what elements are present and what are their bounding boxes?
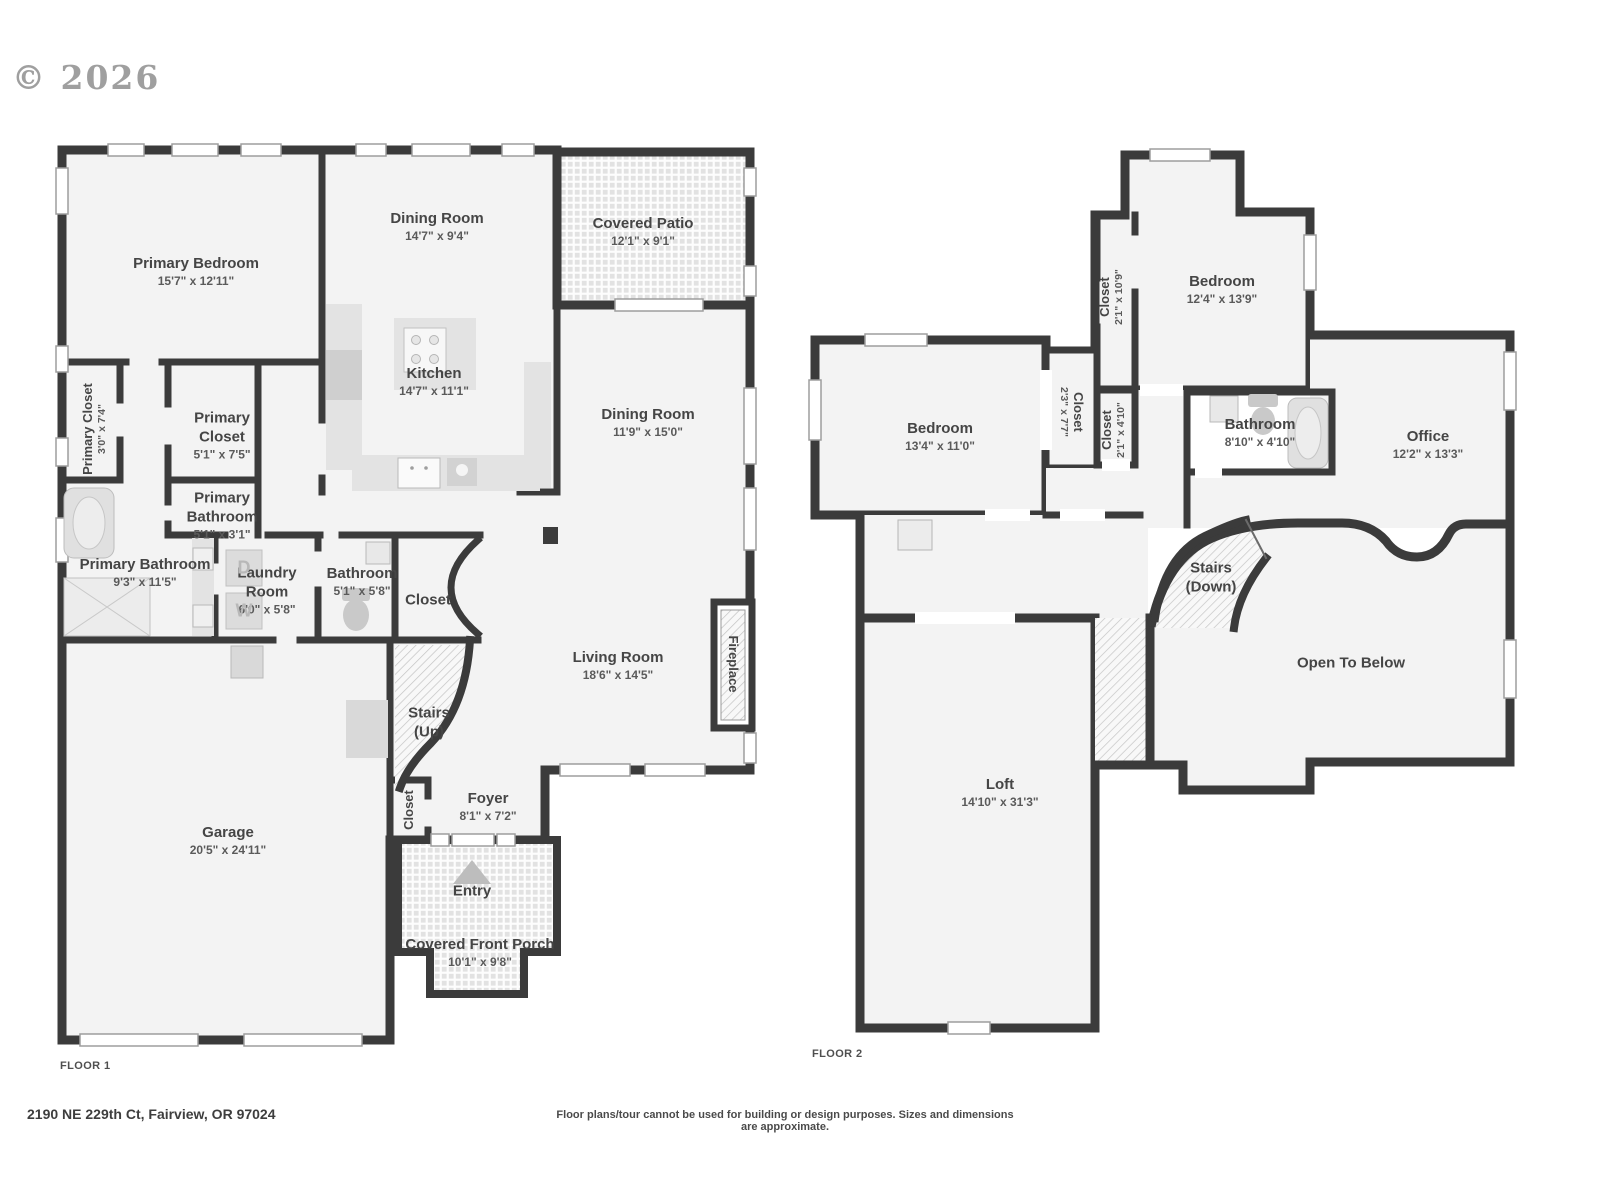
room-label-entry: Entry: [453, 883, 491, 902]
room-label-garage: Garage 20'5" x 24'11": [190, 824, 266, 858]
room-label-office: Office 12'2" x 13'3": [1393, 428, 1463, 462]
room-label-primary-closet-1: Primary Closet 3'0" x 7'4": [80, 383, 110, 475]
floorplan-page: © 2026 Primary Bedroom 15'7" x 12'11" Di…: [0, 0, 1600, 1200]
floor2-plan: [809, 149, 1516, 1034]
front-porch-area: [398, 840, 557, 994]
room-label-covered-front-porch: Covered Front Porch 10'1" x 9'8": [405, 936, 554, 970]
room-label-foyer: Foyer 8'1" x 7'2": [459, 790, 516, 824]
room-label-primary-bedroom: Primary Bedroom 15'7" x 12'11": [133, 255, 259, 289]
floor2-tag: FLOOR 2: [812, 1048, 862, 1060]
disclaimer-text: Floor plans/tour cannot be used for buil…: [548, 1109, 1022, 1133]
room-label-open-to-below: Open To Below: [1297, 655, 1405, 674]
property-address: 2190 NE 229th Ct, Fairview, OR 97024: [27, 1106, 276, 1122]
room-label-closet-foyer: Closet: [401, 790, 417, 830]
room-label-closet-hall: Closet: [405, 592, 451, 611]
washer-letter: W: [236, 601, 253, 622]
room-label-primary-bathroom: Primary Bathroom 9'3" x 11'5": [80, 556, 211, 590]
loft-area: [860, 618, 1095, 1028]
room-label-covered-patio: Covered Patio 12'1" x 9'1": [593, 215, 694, 249]
room-label-bedroom-top: Bedroom 12'4" x 13'9": [1187, 273, 1257, 307]
room-label-loft: Loft 14'10" x 31'3": [961, 776, 1038, 810]
floor1-tag: FLOOR 1: [60, 1060, 110, 1072]
room-label-dining-room-2: Dining Room 11'9" x 15'0": [601, 406, 694, 440]
room-label-dining-room-1: Dining Room 14'7" x 9'4": [390, 210, 483, 244]
room-label-closet-f2-1: Closet 2'1" x 10'9": [1097, 269, 1127, 325]
room-label-closet-f2-3: Closet 2'1" x 4'10": [1099, 402, 1129, 458]
room-label-primary-closet-2: Primary Closet 5'1" x 7'5": [182, 409, 262, 462]
room-label-bedroom-left: Bedroom 13'4" x 11'0": [905, 420, 975, 454]
room-label-primary-bathroom-small: Primary Bathroom 5'1" x 3'1": [175, 489, 270, 542]
room-label-closet-f2-2: Closet 2'3" x 7'7": [1056, 387, 1086, 437]
dryer-letter: D: [238, 558, 251, 579]
room-label-living-room: Living Room 18'6" x 14'5": [573, 649, 664, 683]
room-label-stairs-down: Stairs (Down): [1175, 559, 1247, 597]
copyright-watermark: © 2026: [12, 58, 160, 97]
room-label-stairs-up: Stairs (Up): [399, 704, 459, 742]
room-label-bathroom-f2: Bathroom 8'10" x 4'10": [1225, 416, 1296, 450]
room-label-kitchen: Kitchen 14'7" x 11'1": [399, 365, 469, 399]
room-label-bathroom-1: Bathroom 5'1" x 5'8": [327, 565, 398, 599]
room-label-fireplace: Fireplace: [725, 635, 741, 692]
